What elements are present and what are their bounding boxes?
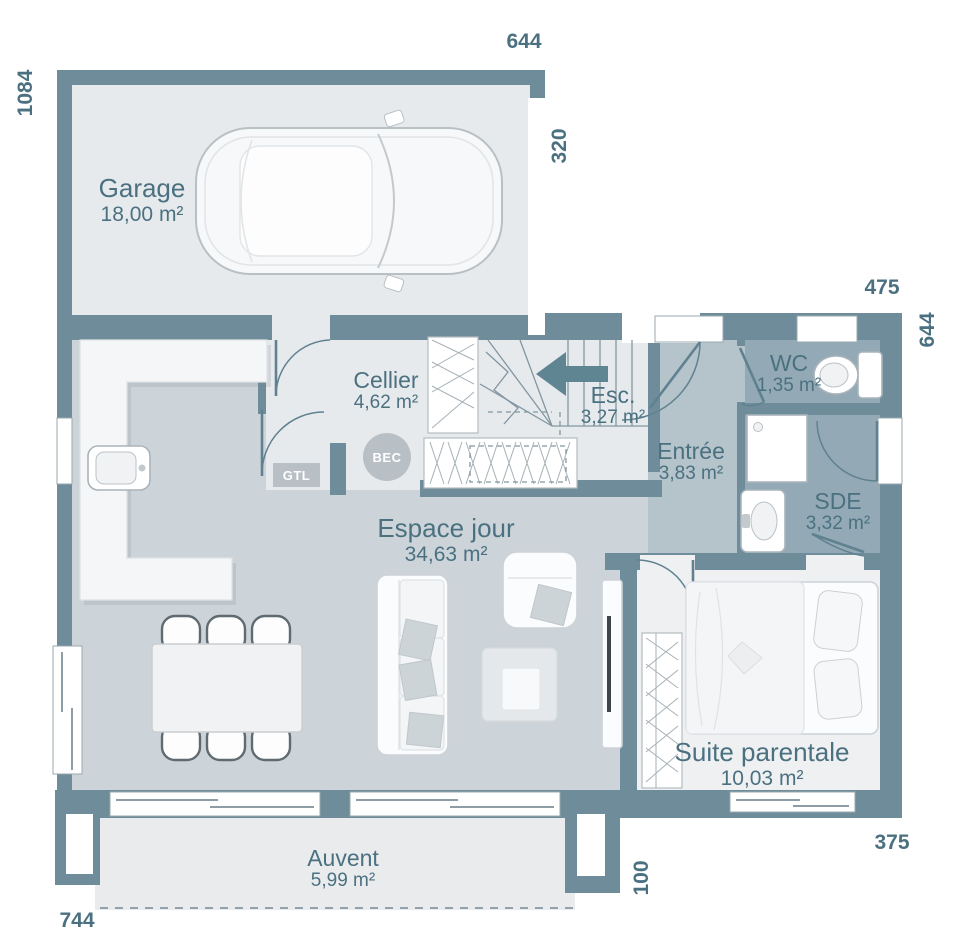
room-area: 5,99 m² <box>307 871 379 892</box>
room-area: 18,00 m² <box>99 203 186 226</box>
room-area: 3,27 m² <box>581 408 645 429</box>
room-name: Auvent <box>307 846 379 871</box>
room-name: Entrée <box>657 439 725 464</box>
dim-bottom-right: 375 <box>874 831 909 855</box>
stair-cupboard <box>428 337 478 433</box>
room-area: 34,63 m² <box>377 543 514 566</box>
room-name: Cellier <box>353 368 418 393</box>
room-name: SDE <box>806 489 870 514</box>
coffee-table <box>482 648 557 721</box>
room-label-esc: Esc. 3,27 m² <box>581 383 645 429</box>
dining-set <box>152 616 302 760</box>
sde-sink-icon <box>741 490 785 552</box>
floorplan-graphic <box>0 0 960 945</box>
bec-tag: BEC <box>363 433 411 481</box>
bed <box>686 582 878 734</box>
tv-unit <box>602 580 622 748</box>
dim-right: 644 <box>916 312 940 347</box>
window-sde <box>878 418 902 484</box>
car-icon <box>196 110 502 293</box>
dim-top-right: 475 <box>864 276 899 300</box>
room-area: 4,62 m² <box>353 393 418 414</box>
room-label-suite: Suite parentale 10,03 m² <box>675 738 850 790</box>
room-label-espace-jour: Espace jour 34,63 m² <box>377 514 514 566</box>
dim-left: 1084 <box>14 70 38 117</box>
room-label-wc: WC 1,35 m² <box>757 351 821 397</box>
room-area: 10,03 m² <box>675 767 850 790</box>
shower-icon <box>747 415 807 482</box>
room-area: 1,35 m² <box>757 376 821 397</box>
gtl-tag: GTL <box>273 463 320 487</box>
room-name: Suite parentale <box>675 738 850 767</box>
room-area: 3,83 m² <box>657 464 725 485</box>
window-entree <box>655 316 723 342</box>
sideboard <box>424 438 577 488</box>
sofa <box>377 575 448 755</box>
window-suite <box>730 792 855 812</box>
garage-door-opening <box>528 98 545 335</box>
tv-icon <box>607 616 611 712</box>
dim-garage-side: 320 <box>548 128 572 163</box>
dim-auvent-depth: 100 <box>630 860 654 895</box>
room-name: Esc. <box>581 383 645 408</box>
bay-window-1 <box>110 792 320 816</box>
window-wc <box>797 316 857 342</box>
dim-top: 644 <box>506 30 541 54</box>
bay-window-2 <box>350 792 560 816</box>
window-kitchen <box>57 418 72 484</box>
kitchen-sink <box>88 446 150 490</box>
floor-plan: Garage 18,00 m² Cellier 4,62 m² Esc. 3,2… <box>0 0 960 945</box>
room-name: WC <box>757 351 821 376</box>
room-area: 3,32 m² <box>806 514 870 535</box>
room-label-sde: SDE 3,32 m² <box>806 489 870 535</box>
room-label-auvent: Auvent 5,99 m² <box>307 846 379 892</box>
room-name: Espace jour <box>377 514 514 543</box>
dim-bottom: 744 <box>59 909 94 933</box>
room-label-cellier: Cellier 4,62 m² <box>353 368 418 414</box>
dining-table <box>152 644 302 732</box>
room-label-entree: Entrée 3,83 m² <box>657 439 725 485</box>
window-left-lower <box>53 646 82 774</box>
room-label-garage: Garage 18,00 m² <box>99 174 186 226</box>
room-name: Garage <box>99 174 186 203</box>
toilet-icon <box>814 352 882 398</box>
